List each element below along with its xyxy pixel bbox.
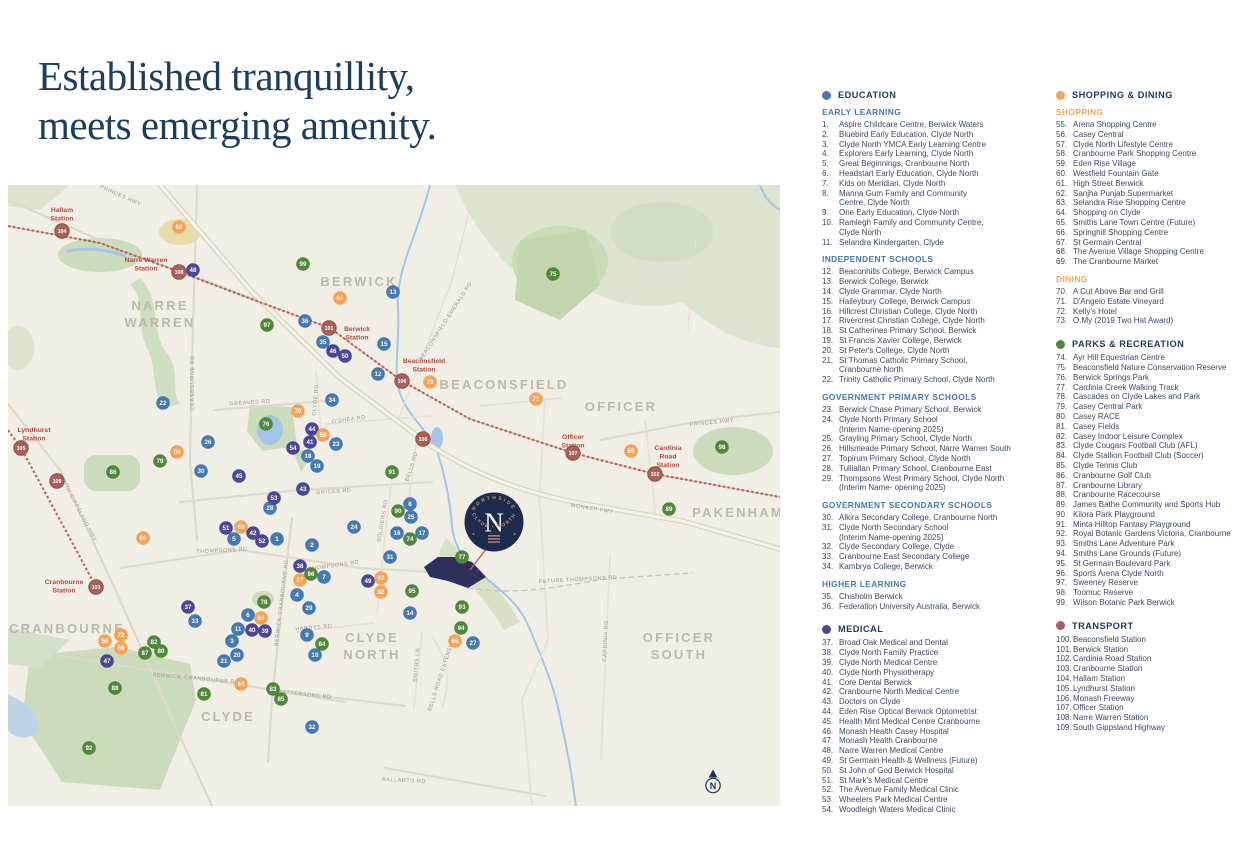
map-marker-14-education: 14 [403, 606, 417, 620]
map-marker-94-parks-recreation: 94 [454, 621, 468, 635]
legend-item-number: 62. [1056, 189, 1073, 199]
svg-text:1: 1 [275, 536, 279, 543]
map-marker-63-shopping-dining: 63 [254, 611, 268, 625]
legend-item-number: 31. [822, 523, 839, 543]
legend-item-number: 63. [1056, 198, 1073, 208]
map-marker-67-shopping-dining: 67 [374, 571, 388, 585]
legend-item-number: 35. [822, 592, 839, 602]
legend-item-name: Clyde Grammar, Clyde North [839, 287, 942, 297]
legend-item-name: Monash Health Cranbourne [839, 736, 937, 746]
legend-item-number: 104. [1056, 674, 1073, 684]
map-marker-78-parks-recreation: 78 [257, 595, 271, 609]
map-marker-96-parks-recreation: 96 [304, 567, 318, 581]
legend-item-number: 49. [822, 756, 839, 766]
map-marker-41-medical: 41 [303, 435, 317, 449]
station-label: Station [412, 367, 435, 374]
legend-item-number: 23. [822, 405, 839, 415]
legend-item-number: 56. [1056, 130, 1073, 140]
map-marker-56-shopping-dining: 56 [170, 445, 184, 459]
legend-item-name: Rivercrest Christian College, Clyde Nort… [839, 316, 985, 326]
legend-item-70: 70.A Cut Above Bar and Grill [1056, 287, 1258, 297]
legend-item-number: 18. [822, 326, 839, 336]
legend-item-number: 65. [1056, 218, 1073, 228]
map-marker-91-parks-recreation: 91 [385, 465, 399, 479]
legend-item-name: The Avenue Village Shopping Centre [1073, 247, 1204, 257]
svg-text:9: 9 [305, 632, 309, 639]
legend-item-number: 39. [822, 658, 839, 668]
map-marker-66-shopping-dining: 66 [136, 531, 150, 545]
legend-item-74: 74.Ayr Hill Equestrian Centre [1056, 353, 1258, 363]
svg-text:65: 65 [452, 638, 459, 645]
legend-item-88: 88.Cranbourne Racecourse [1056, 490, 1258, 500]
legend-column-2: SHOPPING & DININGSHOPPING55.Arena Shoppi… [1056, 90, 1258, 746]
legend-item-name: Cascades on Clyde Lakes and Park [1073, 392, 1200, 402]
legend-item-number: 73. [1056, 316, 1073, 326]
svg-text:7: 7 [322, 574, 326, 581]
legend-item-85: 85.Clyde Tennis Club [1056, 461, 1258, 471]
station-label: Station [345, 335, 368, 342]
legend-item-number: 57. [1056, 140, 1073, 150]
legend-item-name: Beaconsfield Nature Conservation Reserve [1073, 363, 1226, 373]
svg-text:76: 76 [263, 421, 270, 428]
legend-section-parks_recreation: PARKS & RECREATION74.Ayr Hill Equestrian… [1056, 339, 1258, 608]
legend-item-name: Kids on Meridian, Clyde North [839, 179, 945, 189]
legend-item-37: 37.Broad Oak Medical and Dental [822, 638, 1042, 648]
svg-text:11: 11 [235, 626, 242, 633]
legend-item-name: Sanjha Punjab Supermarket [1073, 189, 1173, 199]
legend-item-name: St Germain Health & Wellness (Future) [839, 756, 978, 766]
map-marker-2-education: 2 [305, 538, 319, 552]
legend-item-48: 48.Narre Warren Medical Centre [822, 746, 1042, 756]
legend-item-name: James Bathe Community and Sports Hub [1073, 500, 1220, 510]
legend-items: 70.A Cut Above Bar and Grill71.D'Angelo … [1056, 287, 1258, 326]
map-marker-4-education: 4 [290, 588, 304, 602]
svg-text:13: 13 [390, 289, 397, 296]
legend-item-81: 81.Casey Fields [1056, 422, 1258, 432]
map-marker-48-medical: 48 [186, 263, 200, 277]
compass-letter: N [710, 781, 717, 791]
legend-section-education: EDUCATIONEARLY LEARNING1.Aspire Childcar… [822, 90, 1042, 611]
legend-item-number: 68. [1056, 247, 1073, 257]
map-marker-34-education: 34 [325, 393, 339, 407]
map-marker-7-education: 7 [317, 570, 331, 584]
svg-text:91: 91 [389, 469, 396, 476]
legend-item-number: 81. [1056, 422, 1073, 432]
map-marker-26-education: 26 [201, 435, 215, 449]
legend-item-number: 51. [822, 776, 839, 786]
legend-item-name: Eden Rise Optical Berwick Optometrist [839, 707, 977, 717]
map-marker-52-medical: 52 [255, 534, 269, 548]
northside-logo: N NORTHSIDE CLYDE • NORTH [465, 493, 524, 552]
legend-item-number: 97. [1056, 578, 1073, 588]
legend-item-number: 16. [822, 307, 839, 317]
legend-item-name: Arena Shopping Centre [1073, 120, 1157, 130]
legend-item-number: 91. [1056, 520, 1073, 530]
map-marker-104-transport: 104 [55, 224, 69, 238]
svg-text:2: 2 [310, 542, 314, 549]
legend-section-header: PARKS & RECREATION [1056, 339, 1258, 349]
legend-item-name: Clyde Tennis Club [1073, 461, 1137, 471]
legend-item-name: Westfield Fountain Gate [1073, 169, 1159, 179]
svg-text:15: 15 [381, 341, 388, 348]
map-marker-62-shopping-dining: 62 [374, 585, 388, 599]
map-marker-93-parks-recreation: 93 [455, 600, 469, 614]
station-label: Hallam [51, 207, 73, 214]
svg-text:55: 55 [628, 448, 635, 455]
svg-text:109: 109 [53, 479, 62, 485]
legend-item-14: 14.Clyde Grammar, Clyde North [822, 287, 1042, 297]
legend-subheader: GOVERNMENT SECONDARY SCHOOLS [822, 500, 1042, 510]
legend-item-name: O.My (2019 Two Hat Award) [1073, 316, 1173, 326]
legend-item-number: 96. [1056, 569, 1073, 579]
svg-text:75: 75 [550, 271, 557, 278]
svg-text:88: 88 [112, 685, 119, 692]
legend-item-number: 1. [822, 120, 839, 130]
svg-text:99: 99 [300, 261, 307, 268]
suburb-label-berwick: BERWICK [320, 274, 397, 289]
legend-item-number: 17. [822, 316, 839, 326]
legend-item-number: 101. [1056, 645, 1073, 655]
svg-text:77: 77 [459, 554, 466, 561]
legend-item-number: 61. [1056, 179, 1073, 189]
legend-item-number: 29. [822, 474, 839, 494]
legend-item-name: Clyde North Family Practice [839, 648, 938, 658]
svg-text:95: 95 [409, 588, 416, 595]
logo-bar [488, 541, 500, 542]
legend-item-name: Cranbourne Park Shopping Centre [1073, 149, 1196, 159]
legend-item-41: 41.Core Dental Berwick [822, 678, 1042, 688]
legend-item-108: 108.Narre Warren Station [1056, 713, 1258, 723]
svg-text:96: 96 [308, 571, 315, 578]
legend-item-94: 94.Smiths Lane Grounds (Future) [1056, 549, 1258, 559]
legend-item-name: Kambrya College, Berwick [839, 562, 933, 572]
legend-subheader: DINING [1056, 274, 1258, 284]
legend-item-name: Ayr Hill Equestrian Centre [1073, 353, 1165, 363]
legend-item-name: Cranbourne East Secondary College [839, 552, 969, 562]
map-marker-53-medical: 53 [267, 491, 281, 505]
legend-item-number: 27. [822, 454, 839, 464]
map-marker-30-education: 30 [194, 464, 208, 478]
legend-item-101: 101.Berwick Station [1056, 645, 1258, 655]
legend-item-number: 54. [822, 805, 839, 815]
legend-item-name: Manna Gum Family and CommunityCentre, Cl… [839, 189, 967, 209]
legend-item-24: 24.Clyde North Primary School(Interim Na… [822, 415, 1042, 435]
legend-item-name: Springhill Shopping Centre [1073, 228, 1168, 238]
svg-text:102: 102 [651, 472, 660, 478]
svg-text:62: 62 [378, 589, 385, 596]
legend-item-number: 92. [1056, 529, 1073, 539]
legend-item-40: 40.Clyde North Physiotherapy [822, 668, 1042, 678]
legend-items: 35.Chisholm Berwick36.Federation Univers… [822, 592, 1042, 612]
legend-item-103: 103.Cranbourne Station [1056, 664, 1258, 674]
map-marker-8-education: 8 [403, 497, 417, 511]
legend-item-number: 11. [822, 238, 839, 248]
legend-item-7: 7.Kids on Meridian, Clyde North [822, 179, 1042, 189]
legend-section-title: PARKS & RECREATION [1072, 339, 1184, 349]
legend-item-102: 102.Cardinia Road Station [1056, 654, 1258, 664]
station-label: Station [50, 216, 73, 223]
svg-text:64: 64 [238, 681, 245, 688]
svg-text:8: 8 [408, 501, 412, 508]
legend-items: 37.Broad Oak Medical and Dental38.Clyde … [822, 638, 1042, 814]
legend-item-number: 52. [822, 785, 839, 795]
legend-item-number: 19. [822, 336, 839, 346]
legend-item-38: 38.Clyde North Family Practice [822, 648, 1042, 658]
legend-item-11: 11.Selandra Kindergarten, Clyde [822, 238, 1042, 248]
road-label: CRANBOURNE RD [190, 355, 196, 410]
station-label: Station [22, 436, 45, 443]
legend-item-name: Sweeney Reserve [1073, 578, 1138, 588]
legend-section-header: EDUCATION [822, 90, 1042, 100]
svg-text:63: 63 [258, 615, 265, 622]
legend-item-name: Selandra Kindergarten, Clyde [839, 238, 944, 248]
legend-item-72: 72.Kelly's Hotel [1056, 307, 1258, 317]
legend-item-name: St Francis Xavier College, Berwick [839, 336, 962, 346]
legend-item-86: 86.Cranbourne Golf Club [1056, 471, 1258, 481]
map-marker-69-shopping-dining: 69 [114, 641, 128, 655]
map-marker-84-parks-recreation: 84 [315, 637, 329, 651]
legend-item-6: 6.Headstart Early Education, Clyde North [822, 169, 1042, 179]
legend-item-77: 77.Cardinia Creek Walking Track [1056, 383, 1258, 393]
legend-item-68: 68.The Avenue Village Shopping Centre [1056, 247, 1258, 257]
svg-text:45: 45 [236, 473, 243, 480]
legend-item-name: Clyde Secondary College, Clyde [839, 542, 954, 552]
legend-section-title: MEDICAL [838, 624, 883, 634]
legend-item-66: 66.Springhill Shopping Centre [1056, 228, 1258, 238]
legend-item-32: 32.Clyde Secondary College, Clyde [822, 542, 1042, 552]
legend-item-33: 33.Cranbourne East Secondary College [822, 552, 1042, 562]
svg-text:54: 54 [290, 445, 297, 452]
legend-item-2: 2.Bluebird Early Education, Clyde North [822, 130, 1042, 140]
legend-item-name: Cardinia Road Station [1073, 654, 1151, 664]
map-marker-82-parks-recreation: 82 [147, 635, 161, 649]
map-marker-92-parks-recreation: 92 [82, 741, 96, 755]
svg-text:17: 17 [419, 530, 426, 537]
legend-item-16: 16.Hillcrest Christian College, Clyde No… [822, 307, 1042, 317]
legend-item-number: 2. [822, 130, 839, 140]
map-marker-103-transport: 103 [89, 580, 103, 594]
legend-items: 30.Alkira Secondary College, Cranbourne … [822, 513, 1042, 572]
svg-text:19: 19 [314, 463, 321, 470]
legend-item-name: Wheelers Park Medical Centre [839, 795, 947, 805]
legend-item-name: Clyde North Secondary School(Interim Nam… [839, 523, 948, 543]
map-marker-46-medical: 46 [326, 344, 340, 358]
svg-text:59: 59 [320, 432, 327, 439]
map-marker-90-parks-recreation: 90 [391, 504, 405, 518]
legend-item-49: 49.St Germain Health & Wellness (Future) [822, 756, 1042, 766]
suburb-label-narre: NARRE [131, 298, 188, 313]
svg-text:98: 98 [719, 444, 726, 451]
legend-item-number: 82. [1056, 432, 1073, 442]
legend-item-name: Cranbourne Racecourse [1073, 490, 1160, 500]
legend-item-name: Core Dental Berwick [839, 678, 912, 688]
legend-section-transport: TRANSPORT100.Beaconsfield Station101.Ber… [1056, 621, 1258, 733]
legend-item-number: 59. [1056, 159, 1073, 169]
legend-item-19: 19.St Francis Xavier College, Berwick [822, 336, 1042, 346]
svg-text:16: 16 [394, 530, 401, 537]
legend-item-55: 55.Arena Shopping Centre [1056, 120, 1258, 130]
svg-text:90: 90 [395, 508, 402, 515]
legend-item-name: The Avenue Family Medical Clinic [839, 785, 959, 795]
svg-text:106: 106 [419, 437, 428, 443]
legend-item-number: 89. [1056, 500, 1073, 510]
legend-item-92: 92.Royal Botanic Gardens Victoria, Cranb… [1056, 529, 1258, 539]
legend-item-29: 29.Thompsons West Primary School, Clyde … [822, 474, 1042, 494]
station-label: Road [660, 454, 677, 461]
map-marker-58-shopping-dining: 58 [98, 634, 112, 648]
legend-item-name: Minta Hilltop Fantasy Playground [1073, 520, 1190, 530]
legend-item-69: 69.The Cranbourne Market [1056, 257, 1258, 267]
legend-item-107: 107.Officer Station [1056, 703, 1258, 713]
legend-item-name: Berwick Station [1073, 645, 1128, 655]
legend-item-number: 93. [1056, 539, 1073, 549]
legend-item-number: 90. [1056, 510, 1073, 520]
legend-item-number: 25. [822, 434, 839, 444]
map-marker-102-transport: 102 [648, 467, 662, 481]
map-marker-81-parks-recreation: 81 [197, 687, 211, 701]
map-marker-50-medical: 50 [338, 349, 352, 363]
legend-item-47: 47.Monash Health Cranbourne [822, 736, 1042, 746]
legend-item-number: 34. [822, 562, 839, 572]
legend-item-name: Narre Warren Medical Centre [839, 746, 943, 756]
legend-item-97: 97.Sweeney Reserve [1056, 578, 1258, 588]
legend-item-number: 12. [822, 267, 839, 277]
legend-item-75: 75.Beaconsfield Nature Conservation Rese… [1056, 363, 1258, 373]
map-marker-36-education: 36 [298, 314, 312, 328]
education-dot-icon [822, 91, 831, 100]
legend-item-name: Smiths Lane Grounds (Future) [1073, 549, 1181, 559]
legend-item-name: Health Mint Medical Centre Cranbourne [839, 717, 980, 727]
legend-item-name: High Street Berwick [1073, 179, 1143, 189]
legend-item-67: 67.St Germain Central [1056, 238, 1258, 248]
svg-text:33: 33 [192, 618, 199, 625]
legend-item-name: Monash Freeway [1073, 694, 1134, 704]
svg-text:37: 37 [185, 604, 192, 611]
legend-item-104: 104.Hallam Station [1056, 674, 1258, 684]
legend-item-number: 94. [1056, 549, 1073, 559]
legend-item-name: Hallam Station [1073, 674, 1125, 684]
map-marker-106-transport: 106 [416, 432, 430, 446]
legend-item-105: 105.Lyndhurst Station [1056, 684, 1258, 694]
legend-item-name: Federation University Australia, Berwick [839, 602, 980, 612]
map-marker-101-transport: 101 [322, 321, 336, 335]
legend-item-name: One Early Education, Clyde North [839, 208, 959, 218]
map-marker-105-transport: 105 [14, 441, 28, 455]
svg-text:5: 5 [232, 536, 236, 543]
station-label: Station [52, 588, 75, 595]
legend-item-name: Clyde North Lifestyle Centre [1073, 140, 1173, 150]
legend-item-82: 82.Casey Indoor Leisure Complex [1056, 432, 1258, 442]
legend-item-name: Selandra Rise Shopping Centre [1073, 198, 1186, 208]
legend-item-number: 83. [1056, 441, 1073, 451]
legend-item-number: 41. [822, 678, 839, 688]
suburb-label-beaconsfield: BEACONSFIELD [440, 377, 569, 392]
legend-item-name: Chisholm Berwick [839, 592, 903, 602]
map-marker-23-education: 23 [329, 437, 343, 451]
legend-item-84: 84.Clyde Stallion Football Club (Soccer) [1056, 451, 1258, 461]
legend-item-50: 50.St John of God Berwick Hospital [822, 766, 1042, 776]
legend-item-name: Aspire Childcare Centre, Berwick Waters [839, 120, 984, 130]
legend-item-number: 53. [822, 795, 839, 805]
legend-item-name: Headstart Early Education, Clyde North [839, 169, 979, 179]
legend-item-number: 71. [1056, 297, 1073, 307]
legend-item-name: St Peter's College, Clyde North [839, 346, 949, 356]
map-marker-74-parks-recreation: 74 [403, 532, 417, 546]
map-marker-95-parks-recreation: 95 [405, 584, 419, 598]
svg-text:41: 41 [307, 439, 314, 446]
svg-text:72: 72 [118, 632, 125, 639]
map-marker-99-parks-recreation: 99 [296, 257, 310, 271]
legend-item-name: Cranbourne Station [1073, 664, 1142, 674]
svg-text:46: 46 [330, 348, 337, 355]
legend-item-name: Cranbourne Library [1073, 481, 1142, 491]
svg-text:79: 79 [157, 458, 164, 465]
map-marker-109-transport: 109 [50, 474, 64, 488]
station-label: Cardinia [654, 445, 681, 452]
legend-item-number: 5. [822, 159, 839, 169]
legend-section-title: EDUCATION [838, 90, 896, 100]
legend-item-name: Casey Fields [1073, 422, 1119, 432]
legend-item-name: Trinity Catholic Primary School, Clyde N… [839, 375, 995, 385]
suburb-label-officer: OFFICER [585, 399, 657, 414]
svg-text:26: 26 [205, 439, 212, 446]
legend-item-79: 79.Casey Central Park [1056, 402, 1258, 412]
legend-item-number: 21. [822, 356, 839, 376]
legend-item-number: 88. [1056, 490, 1073, 500]
legend-section-header: MEDICAL [822, 624, 1042, 634]
suburb-label-cranbourne: CRANBOURNE [9, 621, 125, 636]
station-label: Lyndhurst [18, 427, 52, 434]
map-marker-17-education: 17 [415, 526, 429, 540]
svg-text:34: 34 [329, 397, 336, 404]
legend-items: 74.Ayr Hill Equestrian Centre75.Beaconsf… [1056, 353, 1258, 608]
legend-item-87: 87.Cranbourne Library [1056, 481, 1258, 491]
legend-item-71: 71.D'Angelo Estate Vineyard [1056, 297, 1258, 307]
svg-text:68: 68 [238, 524, 245, 531]
svg-text:30: 30 [198, 468, 205, 475]
legend-items: 12.Beaconhills College, Berwick Campus13… [822, 267, 1042, 385]
svg-text:36: 36 [302, 318, 309, 325]
svg-text:70: 70 [295, 408, 302, 415]
legend-item-number: 66. [1056, 228, 1073, 238]
legend-item-name: Clyde North Physiotherapy [839, 668, 934, 678]
legend-item-78: 78.Cascades on Clyde Lakes and Park [1056, 392, 1258, 402]
legend-item-name: Woodleigh Waters Medical Clinic [839, 805, 956, 815]
legend-items: 100.Beaconsfield Station101.Berwick Stat… [1056, 635, 1258, 733]
legend-item-name: Sports Arena Clyde North [1073, 569, 1164, 579]
legend-item-number: 107. [1056, 703, 1073, 713]
legend-item-number: 30. [822, 513, 839, 523]
svg-text:42: 42 [250, 530, 257, 537]
legend-items: 23.Berwick Chase Primary School, Berwick… [822, 405, 1042, 493]
title-line-2: meets emerging amenity. [38, 101, 436, 150]
legend-column-1: EDUCATIONEARLY LEARNING1.Aspire Childcar… [822, 90, 1042, 828]
map-marker-64-shopping-dining: 64 [234, 677, 248, 691]
map-marker-86-parks-recreation: 86 [106, 465, 120, 479]
legend-subheader: GOVERNMENT PRIMARY SCHOOLS [822, 392, 1042, 402]
svg-text:10: 10 [312, 652, 319, 659]
legend-item-number: 37. [822, 638, 839, 648]
legend-item-name: St Mark's Medical Centre [839, 776, 928, 786]
svg-text:39: 39 [262, 628, 269, 635]
shopping_dining-dot-icon [1056, 91, 1065, 100]
legend-item-name: Kilora Park Playground [1073, 510, 1155, 520]
legend-item-name: Beaconsfield Station [1073, 635, 1146, 645]
legend-item-name: A Cut Above Bar and Grill [1073, 287, 1164, 297]
legend-item-number: 67. [1056, 238, 1073, 248]
svg-text:25: 25 [408, 514, 415, 521]
legend-item-51: 51.St Mark's Medical Centre [822, 776, 1042, 786]
